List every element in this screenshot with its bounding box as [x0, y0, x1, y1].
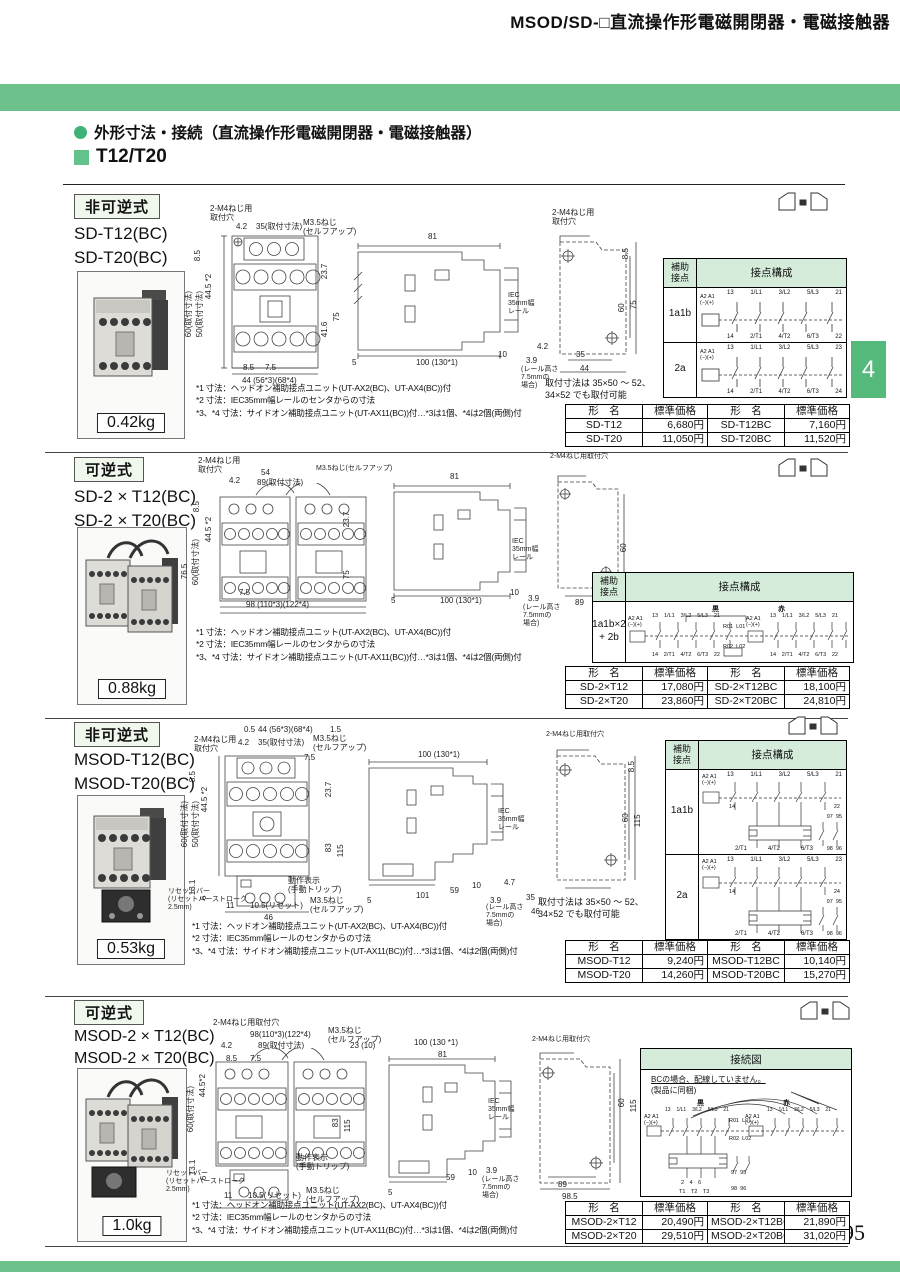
product-photo: 0.88kg — [77, 527, 187, 705]
dim-label: 2-M4ねじ用 取付穴 — [198, 456, 240, 474]
dim-label: 89(取付寸法) — [258, 1041, 304, 1050]
contact-config-header: 接点構成 — [697, 259, 846, 287]
section-divider — [45, 1246, 848, 1247]
price-cell: 10,140円 — [785, 955, 849, 968]
price-table-header: 標準価格 — [643, 941, 707, 954]
dim-label: (レール高さ 7.5mmの 場合) — [482, 1176, 519, 1200]
dim-label: 41.6 — [320, 322, 329, 338]
dim-label: 75 — [629, 300, 638, 309]
contact-label: 22 — [835, 334, 842, 340]
footnote: *1 寸法：ヘッドオン補助接点ユニット(UT-AX2(BC)、UT-AX4(BC… — [196, 626, 522, 638]
section-divider — [45, 996, 848, 997]
dim-label: 81 — [438, 1050, 447, 1059]
contact-row-label: 1a1b — [664, 288, 697, 342]
dim-label: 10.5(リセット) — [250, 901, 303, 910]
dim-label: 100 (130*1) — [440, 596, 482, 605]
contact-label: 2/T1 — [750, 389, 762, 395]
dim-label: 8.5 — [226, 1054, 237, 1063]
contact-schematic: A2 A1 (−)(+) 131/L13/L25/L323 142/T14/T2… — [697, 343, 846, 397]
price-table: 形 名 標準価格 形 名 標準価格 MSOD-2×T12 20,490円 MSO… — [565, 1201, 850, 1244]
green-square-bullet-icon — [74, 150, 89, 165]
footnote: *2 寸法：IEC35mm幅レールのセンタからの寸法 — [192, 932, 518, 944]
type-label: 可逆式 — [74, 1000, 144, 1025]
dim-label: M3.5ねじ (セルフアップ) — [310, 896, 363, 914]
price-cell: 31,020円 — [785, 1230, 849, 1243]
dim-label: 89 — [575, 598, 584, 607]
footnote: *3、*4 寸法：サイドオン補助接点ユニット(UT-AX11(BC))付…*3は… — [196, 407, 522, 419]
dim-label: 3.9 — [526, 356, 537, 365]
dim-label: 35(取付寸法) — [258, 738, 304, 747]
price-table: 形 名 標準価格 形 名 標準価格 MSOD-T12 9,240円 MSOD-T… — [565, 940, 850, 983]
contact-row-label: 2a — [664, 343, 697, 397]
contact-schematic: A2 A1 (−)(+) 131/L13/L25/L321 142/T14/T2… — [697, 288, 846, 342]
dim-label: 10.5(リセット) — [248, 1191, 301, 1200]
contact-label: 6/T3 — [815, 653, 826, 659]
contact-bottom-labels: 142/T14/T26/T324 — [727, 389, 842, 395]
dim-label: 101 — [416, 891, 429, 900]
weight-label: 0.53kg — [97, 939, 165, 959]
dim-label: 50(取付寸法) — [191, 801, 200, 847]
contact-label: 4/T2 — [798, 653, 809, 659]
dim-label: 8.5 — [627, 761, 636, 772]
price-cell: 11,050円 — [643, 433, 707, 446]
contact-label: 6/T3 — [801, 846, 813, 852]
dim-label: (レール高さ 7.5mmの 場合) — [521, 366, 558, 390]
subsection-heading-text: T12/T20 — [96, 146, 167, 168]
dim-label: 8.5 — [188, 771, 197, 782]
dim-label: 5 — [367, 896, 371, 905]
side-view-drawing — [350, 240, 532, 362]
dim-label: 44.5 *2 — [204, 517, 213, 542]
dim-label: 4.2 — [221, 1041, 232, 1050]
model-cell: MSOD-2×T12 — [566, 1216, 642, 1229]
price-table: 形 名 標準価格 形 名 標準価格 SD-T12 6,680円 SD-T12BC… — [565, 404, 850, 447]
dim-label: 8.5 — [192, 501, 201, 512]
contact-config-header: 接点構成 — [699, 741, 846, 769]
dim-label: 100 (130 *1) — [414, 1038, 458, 1047]
dim-label: 7.5 — [239, 588, 250, 597]
contact-label: 2/T1 — [750, 334, 762, 340]
dim-label: 11 — [226, 901, 234, 910]
dim-label: 5 — [388, 1188, 392, 1197]
dim-label: 60 — [617, 303, 626, 312]
contact-schematic: A2 A1 (−)(+) 131/L13/L25/L323 14 24 97 9… — [699, 855, 846, 939]
top-green-band — [0, 84, 900, 111]
weight-label: 0.88kg — [98, 679, 166, 699]
footnotes: *1 寸法：ヘッドオン補助接点ユニット(UT-AX2(BC)、UT-AX4(BC… — [192, 920, 518, 957]
dim-label: 60(取付寸法) — [184, 291, 193, 337]
dim-label: 46 — [264, 913, 273, 922]
dim-label: 100 (130*1) — [418, 750, 460, 759]
dim-label: 60 — [621, 813, 630, 822]
ol-aux-label: 98 96 — [827, 931, 842, 937]
dim-label: (レール高さ 7.5mmの 場合) — [523, 604, 560, 628]
dim-label: 115 — [629, 1099, 638, 1112]
price-cell: 7,160円 — [785, 419, 849, 432]
price-table: 形 名 標準価格 形 名 標準価格 SD-2×T12 17,080円 SD-2×… — [565, 666, 850, 709]
type-label: 非可逆式 — [74, 194, 160, 219]
contact-label: 2/T1 — [782, 653, 793, 659]
dim-label: 89 — [558, 1180, 567, 1189]
contact-bottom-labels: 142/T14/T26/T322 — [652, 653, 720, 659]
price-cell: 6,680円 — [643, 419, 707, 432]
footnotes: *1 寸法：ヘッドオン補助接点ユニット(UT-AX2(BC)、UT-AX4(BC… — [196, 382, 522, 419]
dim-label: M3.5ねじ (セルフアップ) — [303, 218, 356, 236]
green-dot-bullet-icon — [74, 126, 87, 139]
price-cell: 20,490円 — [643, 1216, 707, 1229]
price-table-header: 標準価格 — [785, 941, 849, 954]
dim-label: 98(110*3)(122*4) — [250, 1030, 311, 1039]
dim-label: 10 — [498, 350, 507, 359]
dim-label: 54 — [261, 468, 270, 477]
model-cell: SD-2×T20 — [566, 695, 642, 708]
dim-label: 35(取付寸法) — [256, 222, 302, 231]
dim-label: 60(取付寸法) — [180, 801, 189, 847]
dim-label: 44 (56*3)(68*4) — [242, 376, 297, 385]
contact-label: 22 — [714, 653, 720, 659]
ol-aux-label: 98 96 — [827, 846, 842, 852]
dim-label: 2-M4ねじ用 取付穴 — [210, 204, 252, 222]
price-cell: 18,100円 — [785, 681, 849, 694]
dim-label: 44.5 *2 — [200, 787, 209, 812]
dim-label: 8.5 — [621, 248, 630, 259]
dim-label: 46 — [531, 907, 540, 916]
catalog-page: MSOD/SD-□直流操作形電磁開閉器・電磁接触器 外形寸法・接続（直流操作形電… — [0, 0, 900, 1272]
price-cell: 14,260円 — [643, 969, 707, 982]
footnote: *2 寸法：IEC35mm幅レールのセンタからの寸法 — [196, 638, 522, 650]
model-names: SD-T12(BC) SD-T20(BC) — [74, 222, 168, 270]
dim-label: 5 — [391, 596, 395, 605]
dim-label: 115 — [633, 814, 642, 827]
product-photo: 0.53kg — [77, 795, 185, 965]
din-rail-clip-icon — [798, 999, 852, 1021]
front-view-drawing — [208, 228, 336, 376]
dim-label: 23 (10) — [350, 1041, 375, 1050]
ol-aux-label: 97 95 — [731, 1170, 746, 1176]
mounting-hole-drawing — [528, 1043, 626, 1203]
dim-label: 60 — [619, 543, 628, 552]
price-cell: 11,520円 — [785, 433, 849, 446]
model-cell: MSOD-2×T20BC — [708, 1230, 784, 1243]
dim-label: 8.5 — [243, 363, 254, 372]
dim-label: 2-M4ねじ用取付穴 — [532, 1036, 590, 1044]
dim-label: 10 — [510, 588, 519, 597]
footnotes: *1 寸法：ヘッドオン補助接点ユニット(UT-AX2(BC)、UT-AX4(BC… — [196, 626, 522, 663]
price-table-header: 標準価格 — [643, 1202, 707, 1215]
aux-contact-header: 補助 接点 — [664, 259, 697, 287]
price-cell: 9,240円 — [643, 955, 707, 968]
dim-label: 2-M4ねじ用 取付穴 — [552, 208, 594, 226]
dim-label: 3.9 — [486, 1166, 497, 1175]
dim-label: リセットバー (リセットバーストローク 2.5mm) — [166, 1170, 245, 1194]
ol-terminal-labels: T1 T2 T3 — [679, 1187, 709, 1195]
page-title: MSOD/SD-□直流操作形電磁開閉器・電磁接触器 — [510, 8, 890, 33]
dim-label: 76.5 — [180, 564, 189, 580]
dim-label: 35 — [576, 350, 585, 359]
weight-label: 1.0kg — [102, 1216, 161, 1236]
contact-bottom-labels: 142/T14/T26/T322 — [727, 334, 842, 340]
dim-label: (レール高さ 7.5mmの 場合) — [486, 904, 523, 928]
bottom-green-band — [0, 1261, 900, 1272]
contact-config-table: 補助 接点 接点構成 1a1b×2 + 2b 黒 赤 A2 A1 (−)(+) … — [592, 572, 854, 663]
dim-label: IEC 35mm幅 レール — [512, 538, 538, 562]
connection-diagram-title: 接続図 — [641, 1049, 851, 1070]
dim-label: M3.5ねじ (セルフアップ) — [313, 734, 366, 752]
model-cell: SD-T20 — [566, 433, 642, 446]
model-name: MSOD-2 × T12(BC) — [74, 1026, 215, 1048]
model-cell: MSOD-T20 — [566, 969, 642, 982]
product-photo-illustration — [78, 272, 182, 402]
dim-label: 44 (56*3)(68*4) — [258, 725, 313, 734]
dim-label: 44 — [580, 364, 589, 373]
contact-label: 14 — [770, 653, 776, 659]
price-table-header: 形 名 — [708, 941, 784, 954]
price-table-header: 形 名 — [708, 667, 784, 680]
dim-label: 3.9 — [528, 594, 539, 603]
price-table-header: 標準価格 — [643, 667, 707, 680]
product-photo: 1.0kg — [77, 1068, 187, 1242]
contact-config-header: 接点構成 — [626, 573, 853, 601]
contact-label: 24 — [835, 389, 842, 395]
dim-label: 7.5 — [304, 753, 315, 762]
dim-label: M3.5ねじ(セルフアップ) — [316, 465, 392, 473]
dim-label: 35 — [526, 893, 535, 902]
weight-label: 0.42kg — [97, 413, 165, 433]
dim-label: 0.5 — [244, 725, 255, 734]
footnote: *1 寸法：ヘッドオン補助接点ユニット(UT-AX2(BC)、UT-AX4(BC… — [192, 920, 518, 932]
front-view-drawing — [210, 483, 375, 615]
dim-label: 50(取付寸法) — [195, 291, 204, 337]
dim-label: 10 — [472, 881, 481, 890]
contact-config-table: 補助 接点 接点構成 1a1b A2 A1 (−)(+) 131/L13/L25… — [663, 258, 847, 398]
price-cell: 15,270円 — [785, 969, 849, 982]
model-name: MSOD-T20(BC) — [74, 772, 195, 796]
contact-label: 2/T1 — [735, 931, 747, 937]
contact-label: 4/T2 — [768, 931, 780, 937]
din-rail-clip-icon — [786, 714, 840, 736]
ol-terminal-labels: 2/T14/T26/T3 — [735, 846, 813, 852]
model-cell: SD-2×T12 — [566, 681, 642, 694]
dim-label: 4.2 — [236, 222, 247, 231]
dim-label: 89(取付寸法) — [257, 478, 303, 487]
dim-label: 83 — [331, 1118, 340, 1127]
dim-label: 81 — [428, 232, 437, 241]
din-rail-clip-icon — [776, 456, 830, 478]
contact-label: 6/T3 — [807, 389, 819, 395]
price-table-header: 形 名 — [566, 667, 642, 680]
contact-schematic: 黒 赤 A2 A1 (−)(+) A2 A1 (−)(+) 131/L13/L2… — [626, 602, 853, 662]
dim-label: 44.5*2 — [198, 1074, 207, 1097]
dim-label: 81 — [450, 472, 459, 481]
dim-label: 60(取付寸法) — [186, 1086, 195, 1132]
contact-label: 2/T1 — [735, 846, 747, 852]
aux-contact-header: 補助 接点 — [666, 741, 699, 769]
dim-label: 11 — [224, 1191, 232, 1200]
dim-label: 7.5 — [250, 1054, 261, 1063]
model-names: SD-2 × T12(BC) SD-2 × T20(BC) — [74, 485, 196, 533]
model-cell: SD-2×T20BC — [708, 695, 784, 708]
dim-label: 59 — [450, 886, 459, 895]
contact-label: 2/T1 — [664, 653, 675, 659]
product-photo-illustration — [78, 528, 184, 668]
dim-label: 4.2 — [238, 738, 249, 747]
model-cell: MSOD-T12 — [566, 955, 642, 968]
price-table-header: 標準価格 — [785, 667, 849, 680]
dim-label: 23.7 — [342, 512, 351, 528]
dim-label: 動作表示 (手動トリップ) — [296, 1153, 349, 1171]
dim-label: 8.5 — [193, 250, 202, 261]
model-cell: MSOD-T20BC — [708, 969, 784, 982]
contact-label: 4/T2 — [778, 389, 790, 395]
ol-aux-label: 98 96 — [731, 1186, 746, 1192]
price-cell: 17,080円 — [643, 681, 707, 694]
dim-label: 4.2 — [537, 342, 548, 351]
dim-label: 60 — [617, 1098, 626, 1107]
dim-label: 2-M4ねじ用取付穴 — [550, 453, 608, 461]
model-cell: SD-T12BC — [708, 419, 784, 432]
model-name: MSOD-T12(BC) — [74, 748, 195, 772]
contact-row-label: 1a1b×2 + 2b — [593, 602, 626, 662]
price-table-header: 形 名 — [566, 941, 642, 954]
heading-rule — [63, 184, 845, 185]
price-cell: 23,860円 — [643, 695, 707, 708]
price-table-header: 形 名 — [566, 1202, 642, 1215]
contact-label: 6/T3 — [697, 653, 708, 659]
dim-label: M3.5ねじ (セルフアップ) — [306, 1186, 359, 1204]
price-cell: 29,510円 — [643, 1230, 707, 1243]
model-names: MSOD-T12(BC) MSOD-T20(BC) — [74, 748, 195, 796]
dim-label: 5 — [352, 358, 356, 367]
price-table-header: 標準価格 — [785, 405, 849, 418]
price-table-header: 形 名 — [708, 405, 784, 418]
dim-label: 115 — [343, 1119, 352, 1132]
contact-label: 4/T2 — [778, 334, 790, 340]
dim-label: 7.5 — [265, 363, 276, 372]
dim-label: 75 — [332, 312, 341, 321]
din-rail-clip-icon — [776, 190, 830, 212]
dim-label: 59 — [446, 1173, 455, 1182]
model-cell: SD-T12 — [566, 419, 642, 432]
dim-label: 98.5 — [562, 1192, 578, 1201]
contact-row-label: 2a — [666, 855, 699, 939]
aux-contact-header: 補助 接点 — [593, 573, 626, 601]
contact-label: 22 — [832, 653, 838, 659]
dim-label: リセットバー (リセットバーストローク 2.5mm) — [168, 888, 247, 912]
dim-label: IEC 35mm幅 レール — [488, 1098, 514, 1122]
price-table-header: 標準価格 — [785, 1202, 849, 1215]
footnote: *3、*4 寸法：サイドオン補助接点ユニット(UT-AX11(BC))付…*3は… — [192, 945, 518, 957]
model-cell: MSOD-T12BC — [708, 955, 784, 968]
dim-label: 2-M4ねじ用取付穴 — [546, 731, 604, 739]
side-view-drawing — [363, 758, 511, 888]
ol-terminal-labels: 2/T14/T26/T3 — [735, 931, 813, 937]
dim-label: 83 — [324, 843, 333, 852]
section-divider — [45, 718, 848, 719]
model-cell: SD-2×T12BC — [708, 681, 784, 694]
ol-terminal-labels: 2 4 6 — [681, 1178, 701, 1186]
footnote: *3、*4 寸法：サイドオン補助接点ユニット(UT-AX11(BC))付…*3は… — [196, 651, 522, 663]
dim-label: 1.5 — [330, 725, 341, 734]
section-divider — [45, 452, 848, 453]
contact-label: 14 — [652, 653, 658, 659]
dim-label: 2-M4ねじ用 取付穴 — [194, 735, 236, 753]
footnote: *2 寸法：IEC35mm幅レールのセンタからの寸法 — [196, 394, 522, 406]
contact-config-table: 補助 接点 接点構成 1a1b A2 A1 (−)(+) 131/L13/L25… — [665, 740, 847, 940]
contact-schematic: A2 A1 (−)(+) 131/L13/L25/L321 14 22 97 9… — [699, 770, 846, 854]
contact-label: 6/T3 — [801, 931, 813, 937]
contact-label: 14 — [727, 389, 734, 395]
contact-label: 6/T3 — [807, 334, 819, 340]
model-name: SD-T12(BC) — [74, 222, 168, 246]
dim-label: 4.2 — [229, 476, 240, 485]
model-cell: SD-T20BC — [708, 433, 784, 446]
model-name: SD-2 × T12(BC) — [74, 485, 196, 509]
contact-label: 4/T2 — [680, 653, 691, 659]
dim-label: IEC 35mm幅 レール — [498, 808, 524, 832]
price-cell: 24,810円 — [785, 695, 849, 708]
price-table-header: 形 名 — [566, 405, 642, 418]
contact-label: 4/T2 — [768, 846, 780, 852]
dim-label: 2-M4ねじ用取付穴 — [213, 1018, 279, 1027]
dim-label: 115 — [336, 844, 345, 857]
subsection-heading: T12/T20 — [74, 146, 167, 168]
price-table-header: 標準価格 — [643, 405, 707, 418]
dim-label: IEC 35mm幅 レール — [508, 292, 534, 316]
model-cell: MSOD-2×T20 — [566, 1230, 642, 1243]
section-heading: 外形寸法・接続（直流操作形電磁開閉器・電磁接触器） — [74, 121, 482, 143]
dim-label: 100 (130*1) — [416, 358, 458, 367]
type-label: 可逆式 — [74, 457, 144, 482]
dim-label: 4.7 — [504, 878, 515, 887]
model-name: SD-T20(BC) — [74, 246, 168, 270]
dim-label: 75 — [342, 570, 351, 579]
product-photo-illustration — [78, 796, 182, 928]
dim-label: 60(取付寸法) — [191, 539, 200, 585]
contact-label: 14 — [727, 334, 734, 340]
contact-bottom-labels: 142/T14/T26/T322 — [770, 653, 838, 659]
footnote: *3、*4 寸法：サイドオン補助接点ユニット(UT-AX11(BC))付…*3は… — [192, 1224, 518, 1236]
dim-label: 23.7 — [324, 782, 333, 798]
dim-label: 動作表示 (手動トリップ) — [288, 876, 341, 894]
dim-label: 10 — [468, 1168, 477, 1177]
product-photo: 0.42kg — [77, 271, 185, 439]
price-table-header: 形 名 — [708, 1202, 784, 1215]
mounting-note: 取付寸法は 35×50 ～ 52、 34×52 でも取付可能 — [545, 377, 651, 401]
section-heading-text: 外形寸法・接続（直流操作形電磁開閉器・電磁接触器） — [94, 121, 482, 143]
contact-row-label: 1a1b — [666, 770, 699, 854]
dim-label: 23.7 — [320, 264, 329, 280]
dim-label: 98 (110*3)(122*4) — [246, 600, 309, 609]
price-cell: 21,890円 — [785, 1216, 849, 1229]
type-label: 非可逆式 — [74, 722, 160, 747]
dim-label: 44.5 *2 — [204, 274, 213, 299]
model-names: MSOD-2 × T12(BC) MSOD-2 × T20(BC) — [74, 1026, 215, 1071]
connection-diagram: 接続図 BCの場合、配線していません。 (製品に同梱) 黒 赤 A2 A1 (−… — [640, 1048, 852, 1197]
chapter-tab: 4 — [851, 341, 886, 398]
model-cell: MSOD-2×T12BC — [708, 1216, 784, 1229]
